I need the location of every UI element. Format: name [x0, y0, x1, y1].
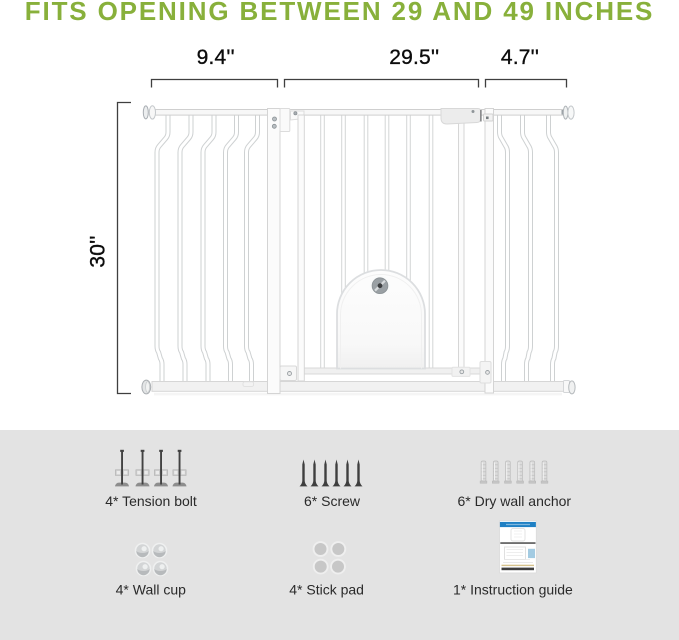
svg-text:4.7'': 4.7'': [501, 46, 539, 69]
svg-text:29.5'': 29.5'': [389, 46, 439, 69]
svg-text:9.4'': 9.4'': [197, 46, 235, 69]
svg-text:30'': 30'': [87, 235, 110, 267]
svg-text:4* Stick pad: 4* Stick pad: [289, 582, 364, 598]
svg-text:6* Dry wall anchor: 6* Dry wall anchor: [457, 493, 571, 509]
svg-text:4* Tension bolt: 4* Tension bolt: [105, 493, 197, 509]
svg-text:4* Wall cup: 4* Wall cup: [116, 582, 187, 598]
svg-text:1* Instruction guide: 1* Instruction guide: [453, 582, 573, 598]
svg-text:6* Screw: 6* Screw: [304, 493, 361, 509]
